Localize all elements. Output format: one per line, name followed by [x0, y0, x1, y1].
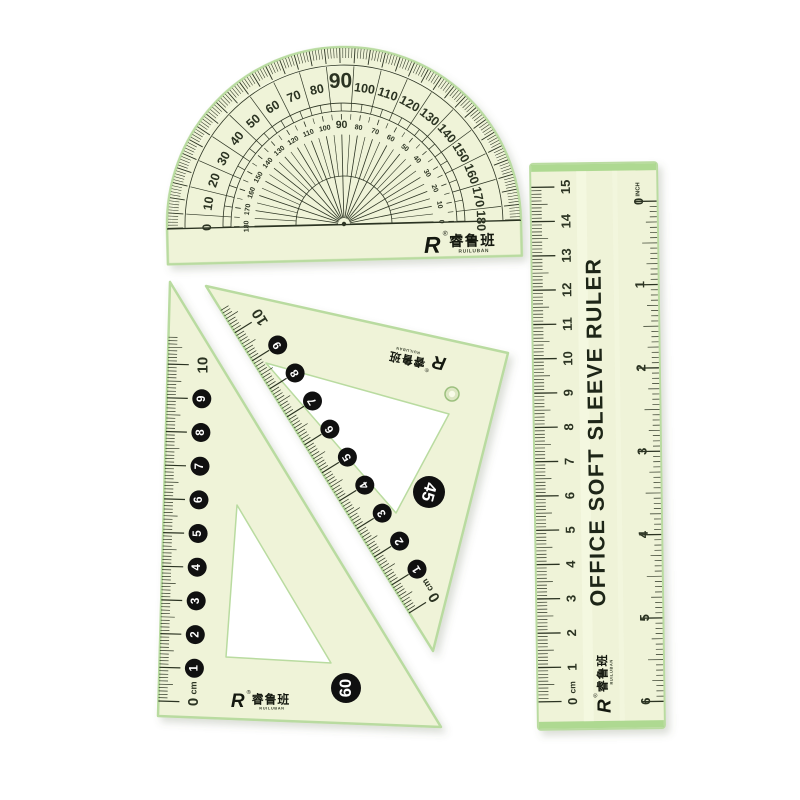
- brand-logo-letter: R: [594, 699, 615, 713]
- cm-number: 15: [558, 180, 573, 195]
- triangle-60-scale-number: 5: [192, 530, 204, 537]
- cm-number: 5: [563, 526, 578, 533]
- triangle-60-scale-number: 3: [190, 598, 202, 604]
- triangle-60-tick: [168, 364, 189, 365]
- triangle-60-unit-label: cm: [188, 681, 198, 694]
- brand-name-en: RUILUBAN: [458, 248, 489, 255]
- cm-number: 2: [564, 629, 579, 636]
- inch-number: 3: [635, 448, 650, 455]
- cm-number: 10: [560, 351, 575, 366]
- triangle-60-tick: [158, 701, 179, 702]
- outer-degree-label: 90: [329, 69, 353, 93]
- straight-ruler: OFFICE SOFT SLEEVE RULER0cm1234567891011…: [530, 162, 665, 730]
- inner-degree-label: 180: [243, 220, 250, 232]
- hanging-hole-center: [449, 391, 455, 397]
- inch-number: 4: [636, 530, 651, 538]
- inch-number: 5: [637, 614, 652, 621]
- outer-degree-label: 10: [201, 196, 217, 212]
- inch-number: 0: [631, 198, 646, 205]
- degree-tick: [168, 222, 178, 223]
- outer-degree-label: 80: [309, 81, 325, 97]
- brand-name-cn: 睿鲁班: [449, 231, 496, 250]
- brand-logo-letter: R: [424, 232, 442, 258]
- triangle-60-tick: [159, 667, 180, 668]
- triangle-60-scale-number: 10: [194, 357, 211, 374]
- triangle-60-scale-number: 7: [194, 463, 206, 469]
- cm-number: 1: [565, 663, 580, 670]
- triangle-60-scale-number: 8: [195, 429, 207, 436]
- triangle-60-tick: [161, 600, 182, 601]
- triangle-60-scale-number: 1: [188, 664, 200, 671]
- cm-unit-label: cm: [567, 681, 577, 694]
- inner-degree-label: 90: [336, 119, 348, 131]
- angle-badge-60-label: 60: [337, 679, 355, 697]
- triangle-60-tick: [164, 499, 185, 500]
- inch-number: 6: [638, 697, 653, 704]
- brand-name-cn: 睿鲁班: [252, 692, 290, 706]
- cm-number: 9: [561, 389, 576, 396]
- inch-number: 1: [632, 281, 647, 288]
- brand-logo-letter: R: [231, 691, 245, 712]
- outer-degree-label: 180: [474, 210, 489, 231]
- ruler-set-scene: 0102030405060708090100110120130140150160…: [0, 0, 800, 800]
- triangle-60-tick: [162, 566, 183, 567]
- inner-degree-label: 80: [354, 124, 363, 132]
- cm-number: 3: [564, 595, 579, 602]
- degree-tick: [346, 48, 347, 58]
- triangle-60-tick: [163, 533, 184, 534]
- triangle-60-scale-number: 2: [189, 631, 201, 637]
- cm-number: 8: [561, 423, 576, 430]
- triangle-60-tick: [165, 465, 186, 466]
- triangle-60-scale-number: 4: [191, 563, 203, 570]
- cm-number: 11: [560, 317, 575, 331]
- cm-number: 0: [565, 698, 580, 705]
- inch-unit-label: INCH: [635, 182, 641, 196]
- brand-name-en: RUILUBAN: [259, 706, 284, 711]
- cm-number: 7: [562, 458, 577, 465]
- outer-degree-label: 0: [200, 224, 214, 231]
- inner-degree-label: 0: [437, 220, 444, 224]
- brand-registered-mark: ®: [443, 230, 448, 238]
- brand-logo: R®睿鲁班RUILUBAN: [231, 689, 290, 712]
- ruler-title: OFFICE SOFT SLEEVE RULER: [581, 257, 610, 606]
- triangle-60-tick: [167, 398, 188, 399]
- triangle-60-tick: [166, 432, 187, 433]
- brand-logo: R®睿鲁班RUILUBAN: [592, 654, 616, 714]
- cm-number: 4: [563, 560, 578, 568]
- triangle-60-scale-number: 0: [185, 698, 202, 706]
- triangle-60-tick: [160, 634, 181, 635]
- cm-number: 12: [559, 282, 574, 297]
- brand-name-en: RUILUBAN: [608, 659, 613, 684]
- cm-number: 13: [559, 248, 574, 263]
- triangle-60-scale-number: 9: [196, 396, 208, 402]
- brand-logo: R®睿鲁班RUILUBAN: [424, 228, 496, 258]
- product-photo: 0102030405060708090100110120130140150160…: [0, 0, 800, 800]
- cm-number: 14: [558, 213, 573, 228]
- inch-number: 2: [633, 364, 648, 371]
- triangle-60-scale-number: 6: [193, 497, 205, 503]
- cm-number: 6: [562, 492, 577, 499]
